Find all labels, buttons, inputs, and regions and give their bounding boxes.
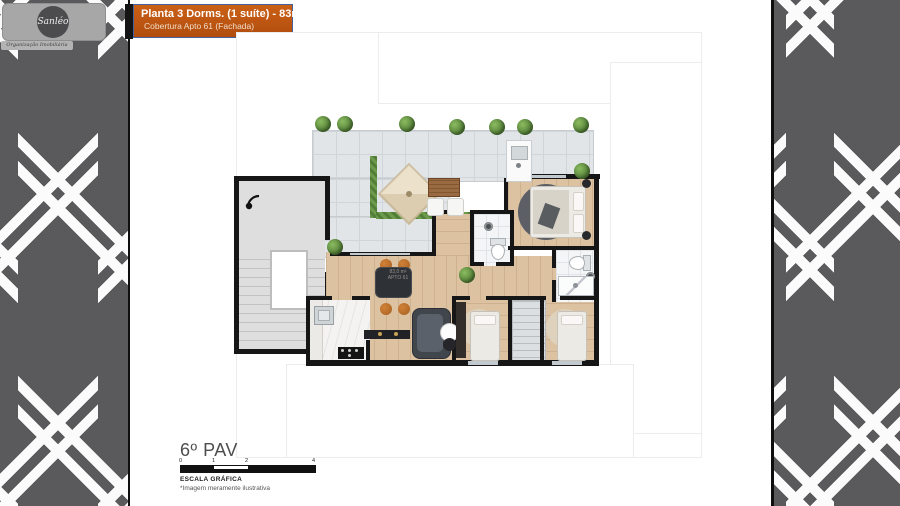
wall bbox=[510, 214, 514, 264]
wall bbox=[456, 296, 470, 300]
bedroom1-bed bbox=[470, 311, 500, 361]
scale-title: ESCALA GRÁFICA bbox=[180, 476, 242, 483]
left-decor-panel: Sanléo Organização Imobiliária bbox=[0, 0, 130, 506]
dining-chair bbox=[398, 303, 410, 315]
wall bbox=[470, 262, 484, 266]
toilet bbox=[490, 238, 506, 260]
plant-icon bbox=[573, 117, 589, 133]
plant-icon bbox=[459, 267, 475, 283]
title-banner-tab bbox=[125, 4, 133, 39]
slide: Sanléo Organização Imobiliária Planta 3 … bbox=[0, 0, 900, 506]
planter-strip bbox=[370, 156, 377, 218]
bathroom-sink bbox=[484, 222, 493, 231]
scale-segment bbox=[248, 466, 315, 472]
plant-icon bbox=[517, 119, 533, 135]
wall bbox=[234, 176, 239, 354]
pillow bbox=[573, 214, 584, 233]
scale-segment bbox=[181, 466, 214, 472]
brand-logo: Sanléo bbox=[3, 4, 105, 40]
plant-icon bbox=[449, 119, 465, 135]
scale-tick: 4 bbox=[312, 458, 315, 464]
wall bbox=[560, 296, 598, 300]
toilet bbox=[569, 255, 591, 271]
wall bbox=[366, 340, 370, 360]
wall bbox=[486, 296, 546, 300]
unit-area-label: 83,0 m² APTO 61 bbox=[376, 270, 420, 281]
scale-tick: 1 bbox=[212, 458, 215, 464]
toilet-bowl bbox=[491, 244, 505, 260]
plan-title: Planta 3 Dorms. (1 suíte) - 83m² bbox=[141, 8, 292, 20]
pillow bbox=[474, 315, 496, 325]
bedroom1-window-glass bbox=[468, 361, 498, 365]
dining-chair bbox=[380, 303, 392, 315]
scale-tick: 0 bbox=[179, 458, 182, 464]
plant-icon bbox=[315, 116, 331, 132]
pillow bbox=[573, 192, 584, 211]
toilet-bowl bbox=[569, 256, 585, 270]
wall bbox=[540, 300, 544, 364]
stair-door-swing-icon bbox=[244, 192, 262, 210]
scale-tick: 2 bbox=[245, 458, 248, 464]
brand-tagline: Organização Imobiliária bbox=[1, 41, 73, 50]
burner bbox=[355, 349, 358, 352]
plant-icon bbox=[337, 116, 353, 132]
wall bbox=[432, 210, 436, 256]
coffee-table bbox=[443, 338, 456, 351]
kitchen-sink bbox=[314, 306, 334, 325]
unit-number: APTO 61 bbox=[376, 276, 420, 282]
burner bbox=[341, 349, 344, 352]
wardrobe bbox=[456, 302, 466, 358]
scale-segment bbox=[214, 469, 248, 472]
wall bbox=[496, 262, 514, 266]
wall bbox=[325, 176, 330, 240]
nightstand bbox=[582, 179, 591, 188]
burner bbox=[348, 349, 351, 352]
nightstand bbox=[582, 231, 591, 240]
outdoor-sink bbox=[511, 146, 528, 160]
wall bbox=[508, 300, 512, 364]
faucet bbox=[516, 163, 521, 168]
bedroom2-bed bbox=[557, 311, 587, 361]
plant-icon bbox=[574, 163, 590, 179]
wall bbox=[234, 176, 330, 181]
entry-hall-floor bbox=[436, 214, 472, 256]
wall bbox=[552, 280, 556, 302]
wall bbox=[552, 246, 556, 268]
wall bbox=[594, 174, 599, 364]
stair-void bbox=[270, 250, 308, 310]
bedroom2-window-glass bbox=[552, 361, 582, 365]
suite-bed bbox=[530, 186, 586, 238]
pillow bbox=[561, 315, 583, 325]
right-decor-panel bbox=[771, 0, 900, 506]
wall bbox=[352, 296, 370, 300]
wall bbox=[504, 178, 508, 214]
suite-window-glass bbox=[530, 175, 566, 178]
lounge-chair bbox=[427, 198, 444, 216]
kitchen-island bbox=[364, 330, 410, 339]
shower-drain bbox=[573, 283, 578, 288]
image-disclaimer: *Imagem meramente ilustrativa bbox=[180, 485, 270, 492]
floor-plan: 83,0 m² APTO 61 bbox=[230, 28, 710, 468]
burner bbox=[348, 354, 351, 357]
sink-bowl bbox=[318, 310, 330, 321]
island-fixture bbox=[378, 332, 382, 336]
shower bbox=[558, 276, 594, 296]
lounge-chair bbox=[447, 198, 464, 216]
wood-table bbox=[428, 178, 460, 197]
scale-bar-rule bbox=[180, 465, 316, 473]
stove bbox=[338, 347, 364, 359]
plant-icon bbox=[489, 119, 505, 135]
outdoor-counter bbox=[506, 140, 532, 182]
island-fixture bbox=[394, 332, 398, 336]
wall bbox=[556, 246, 598, 250]
brand-logo-circle: Sanléo bbox=[37, 6, 69, 38]
plant-icon bbox=[399, 116, 415, 132]
scale-bar: 0 1 2 4 bbox=[180, 458, 320, 476]
slab-outline bbox=[286, 364, 634, 458]
wall bbox=[508, 246, 556, 250]
brand-name: Sanléo bbox=[38, 17, 69, 27]
wall bbox=[470, 214, 474, 264]
plant-icon bbox=[327, 239, 343, 255]
sliding-door-glass bbox=[350, 253, 410, 255]
parasol-pole bbox=[405, 190, 413, 198]
